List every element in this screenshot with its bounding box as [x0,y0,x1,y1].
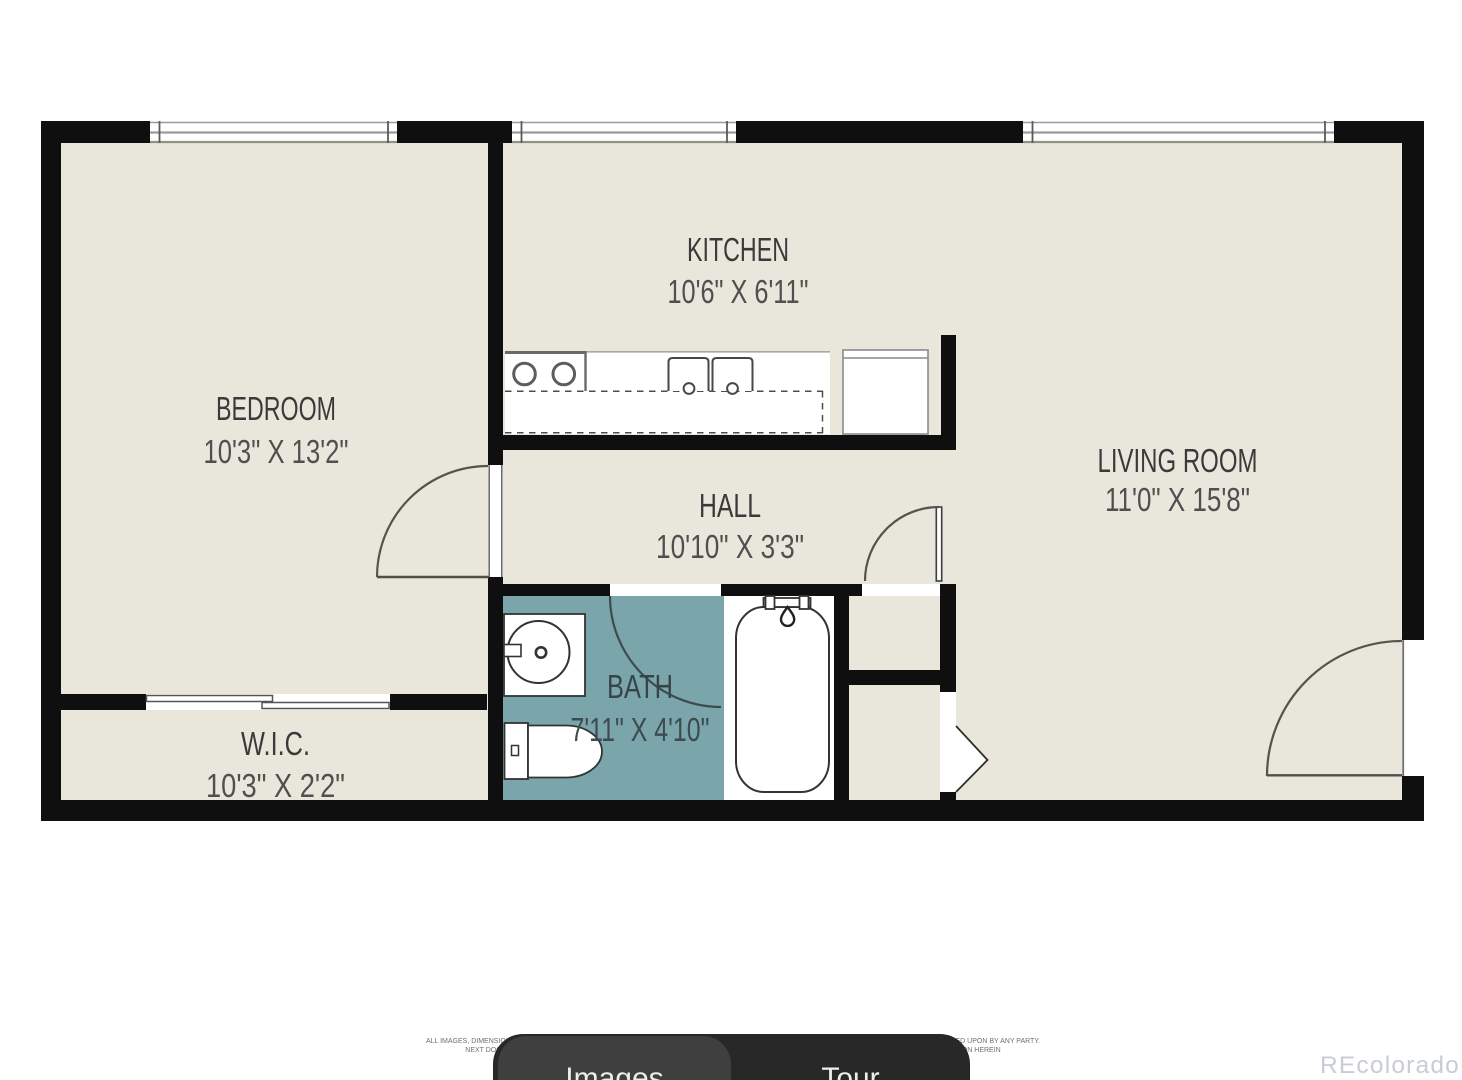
svg-text:W.I.C.: W.I.C. [241,726,310,763]
svg-text:10'6" X 6'11": 10'6" X 6'11" [668,274,809,311]
svg-text:HALL: HALL [699,488,761,525]
svg-text:BATH: BATH [607,669,673,706]
svg-text:10'3" X 2'2": 10'3" X 2'2" [206,768,345,805]
svg-text:10'3" X 13'2": 10'3" X 13'2" [204,434,349,471]
svg-text:11'0" X 15'8": 11'0" X 15'8" [1105,482,1250,519]
svg-text:KITCHEN: KITCHEN [687,232,789,269]
svg-text:LIVING ROOM: LIVING ROOM [1098,443,1258,480]
svg-text:BEDROOM: BEDROOM [216,391,336,428]
svg-text:7'11" X 4'10": 7'11" X 4'10" [571,712,710,749]
svg-text:10'10" X 3'3": 10'10" X 3'3" [656,529,804,566]
